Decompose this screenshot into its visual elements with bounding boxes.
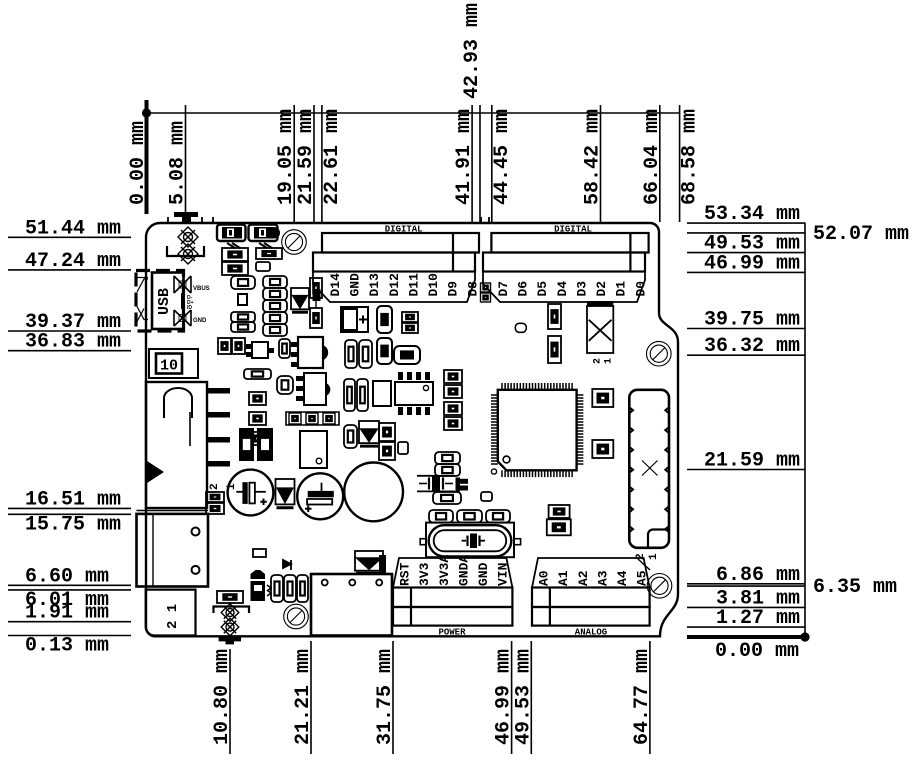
svg-text:1.91 mm: 1.91 mm (25, 602, 109, 625)
svg-text:A3: A3 (596, 570, 611, 586)
svg-text:3V3: 3V3 (417, 562, 432, 586)
svg-text:1: 1 (604, 358, 615, 364)
svg-text:22.61 mm: 22.61 mm (321, 109, 344, 205)
svg-text:3V3A: 3V3A (437, 555, 452, 586)
svg-text:53.34 mm: 53.34 mm (704, 203, 800, 226)
svg-text:52.07 mm: 52.07 mm (813, 223, 909, 246)
svg-text:66.04 mm: 66.04 mm (641, 109, 664, 205)
svg-text:GND: GND (193, 318, 207, 324)
svg-text:RST: RST (398, 562, 413, 586)
svg-text:USB: USB (156, 288, 173, 315)
svg-text:21.59 mm: 21.59 mm (704, 450, 800, 473)
svg-text:2: 2 (635, 553, 647, 560)
svg-text:46.99 mm: 46.99 mm (704, 252, 800, 275)
svg-text:D11: D11 (407, 273, 422, 297)
svg-text:31.75 mm: 31.75 mm (374, 649, 397, 745)
svg-text:D2: D2 (594, 281, 609, 297)
svg-text:10.80 mm: 10.80 mm (211, 649, 234, 745)
svg-text:DIGITAL: DIGITAL (554, 225, 592, 235)
svg-text:D0: D0 (633, 281, 648, 297)
svg-text:5.08 mm: 5.08 mm (167, 121, 190, 205)
svg-text:49.53 mm: 49.53 mm (512, 649, 535, 745)
svg-text:21.59 mm: 21.59 mm (295, 109, 318, 205)
svg-text:58.42 mm: 58.42 mm (582, 109, 605, 205)
svg-text:6.35 mm: 6.35 mm (813, 576, 897, 599)
svg-text:2: 2 (593, 358, 604, 364)
svg-text:D14: D14 (328, 273, 343, 297)
svg-text:A2: A2 (576, 570, 591, 586)
svg-text:0.00 mm: 0.00 mm (127, 121, 150, 205)
svg-text:POWER: POWER (438, 628, 466, 638)
svg-text:42.93 mm: 42.93 mm (461, 3, 484, 99)
svg-text:6.86 mm: 6.86 mm (716, 564, 800, 587)
svg-text:D10: D10 (426, 273, 441, 297)
svg-text:D8: D8 (465, 281, 480, 297)
svg-text:6.60 mm: 6.60 mm (25, 565, 109, 588)
svg-text:1.27 mm: 1.27 mm (716, 607, 800, 630)
svg-text:1: 1 (648, 553, 660, 560)
svg-text:39.75 mm: 39.75 mm (704, 309, 800, 332)
svg-text:D12: D12 (387, 273, 402, 297)
svg-text:VBUS: VBUS (193, 286, 210, 292)
svg-text:36.83 mm: 36.83 mm (25, 331, 121, 354)
svg-text:51.44 mm: 51.44 mm (25, 217, 121, 240)
svg-text:36.32 mm: 36.32 mm (704, 335, 800, 358)
svg-text:0.13 mm: 0.13 mm (25, 635, 109, 658)
svg-text:D9: D9 (446, 281, 461, 297)
svg-text:A4: A4 (615, 570, 630, 586)
svg-text:VIN: VIN (496, 563, 511, 586)
svg-text:2: 2 (209, 483, 221, 490)
svg-text:2 1: 2 1 (165, 604, 181, 629)
svg-text:68.58 mm: 68.58 mm (679, 109, 702, 205)
svg-text:16.51 mm: 16.51 mm (25, 488, 121, 511)
svg-text:41.91 mm: 41.91 mm (453, 109, 476, 205)
svg-text:GNDA: GNDA (457, 555, 472, 586)
svg-text:ANALOG: ANALOG (575, 628, 607, 638)
svg-text:A5: A5 (635, 570, 650, 586)
svg-text:D1: D1 (614, 281, 629, 297)
svg-text:D7: D7 (496, 281, 511, 297)
svg-text:D5: D5 (535, 281, 550, 297)
svg-text:15.75 mm: 15.75 mm (25, 513, 121, 536)
svg-text:47.24 mm: 47.24 mm (25, 250, 121, 273)
svg-text:D6: D6 (516, 281, 531, 297)
svg-text:A1: A1 (556, 570, 571, 586)
svg-text:0.00 mm: 0.00 mm (715, 640, 799, 663)
svg-text:D3: D3 (575, 281, 590, 297)
svg-text:D13: D13 (367, 273, 382, 297)
svg-text:DIGITAL: DIGITAL (385, 225, 423, 235)
svg-text:D4: D4 (555, 281, 570, 297)
svg-text:GND: GND (476, 562, 491, 586)
svg-text:GND: GND (348, 273, 363, 297)
svg-text:64.77 mm: 64.77 mm (631, 649, 654, 745)
svg-text:44.45 mm: 44.45 mm (491, 109, 514, 205)
svg-text:10: 10 (160, 358, 178, 375)
svg-text:21.21 mm: 21.21 mm (292, 649, 315, 745)
svg-text:A0: A0 (537, 570, 552, 586)
